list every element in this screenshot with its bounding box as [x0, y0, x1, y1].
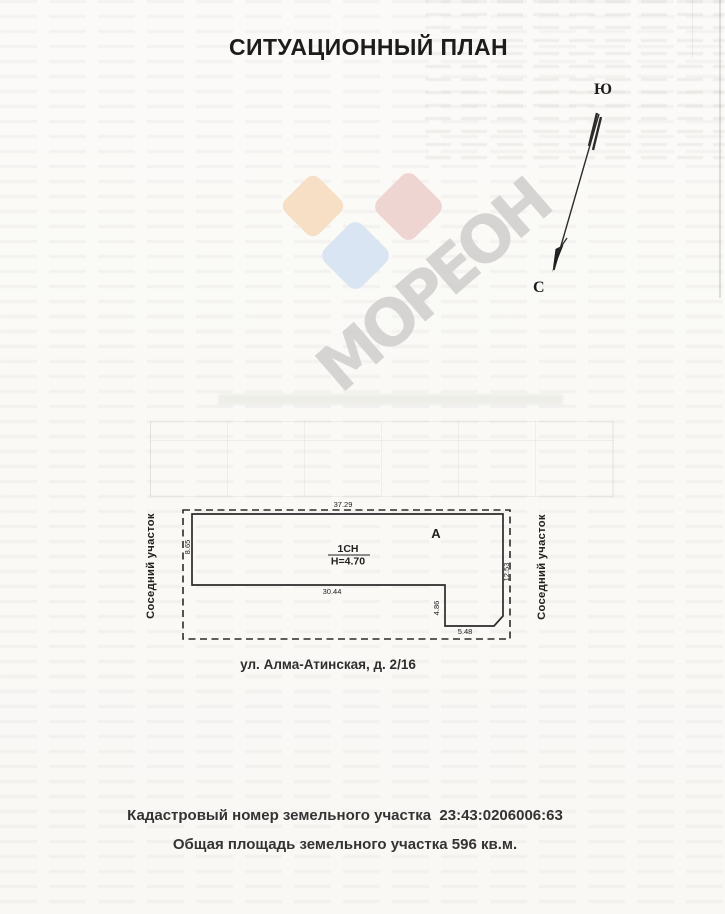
dimension-step-height: 4.86 — [432, 601, 441, 616]
dimension-step-width: 5.48 — [458, 627, 473, 636]
logo-diamond-pink — [371, 169, 446, 244]
parcel-boundary — [183, 510, 510, 639]
section-letter-label: А — [431, 526, 441, 541]
logo-diamond-orange — [279, 172, 347, 240]
building-height-label: Н=4.70 — [331, 556, 365, 568]
neighbor-parcel-label-right: Соседний участок — [536, 514, 548, 620]
dimension-top: 37.29 — [334, 500, 353, 509]
bleedthrough-heading — [218, 394, 563, 405]
dimension-left: 8.65 — [183, 540, 192, 555]
scanned-document-page: СИТУАЦИОННЫЙ ПЛАН МОРЕОН Ю С 37.29 30.44… — [0, 0, 725, 914]
bleedthrough-table — [150, 421, 614, 497]
site-plan-drawing: 37.29 30.44 4.86 5.48 12.53 8.65 А 1СН Н… — [128, 493, 562, 673]
logo-diamond-blue — [318, 218, 393, 293]
building-code-label: 1СН — [337, 543, 358, 555]
building-outline — [192, 514, 503, 626]
total-area-line: Общая площадь земельного участка 596 кв.… — [0, 836, 690, 853]
page-title: СИТУАЦИОННЫЙ ПЛАН — [0, 34, 725, 61]
dimension-bottom: 30.44 — [323, 587, 342, 596]
dimension-right: 12.53 — [502, 563, 511, 582]
compass-north-label: С — [533, 279, 545, 297]
neighbor-parcel-label-left: Соседний участок — [145, 513, 157, 619]
cadastral-number-line: Кадастровый номер земельного участка 23:… — [0, 807, 690, 824]
compass-arrow-barb — [556, 238, 567, 254]
address-line: ул. Алма-Атинская, д. 2/16 — [128, 657, 528, 672]
compass-arrow — [520, 70, 650, 310]
